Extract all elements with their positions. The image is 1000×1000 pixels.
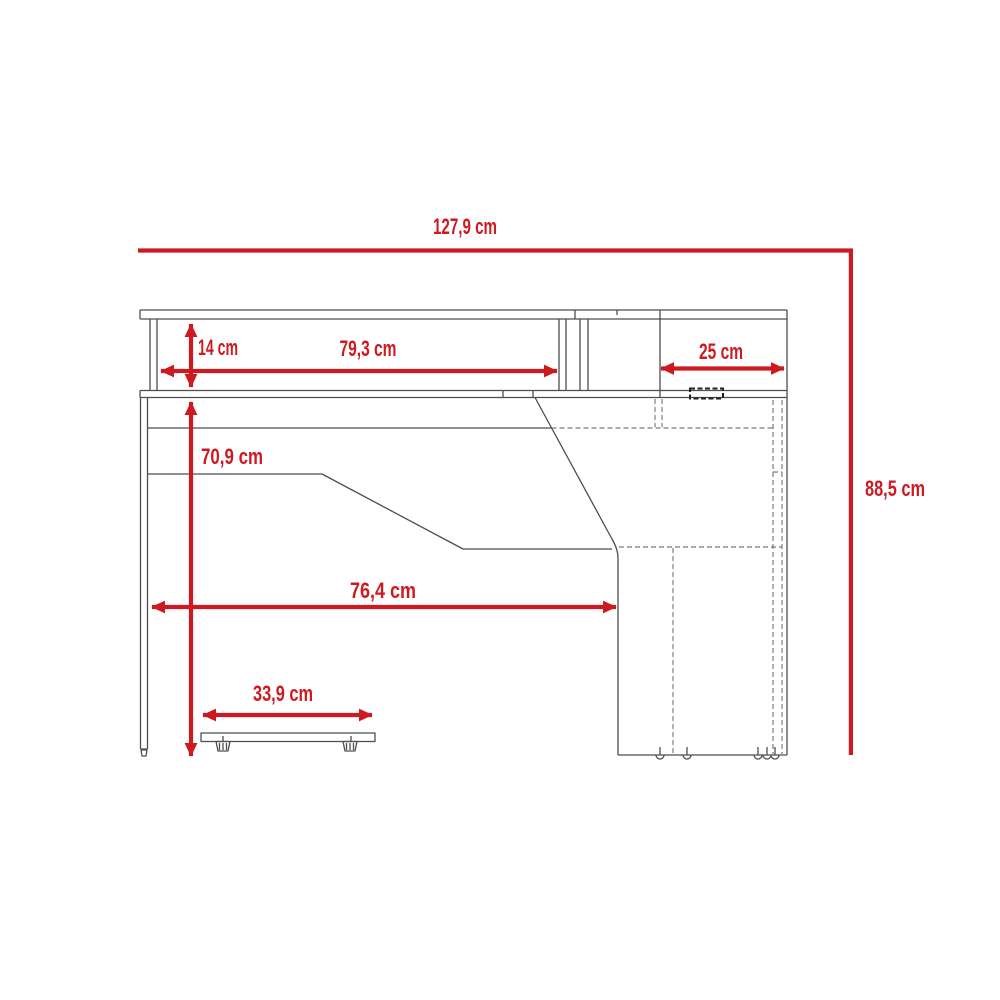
left-side-panel xyxy=(141,398,148,757)
dim-total-height-label: 88,5 cm xyxy=(865,476,925,501)
dim-hutch-height-label: 14 cm xyxy=(198,335,238,360)
dim-desk-height-label: 70,9 cm xyxy=(201,444,263,469)
diagram-canvas: 127,9 cm 88,5 cm 14 cm 79,3 cm 25 cm 70,… xyxy=(0,0,1000,1000)
hutch-top-board xyxy=(140,310,787,319)
desk-outline xyxy=(140,310,787,759)
right-leg-panel xyxy=(535,310,787,755)
right-panel-feet xyxy=(656,747,779,759)
dim-right-shelf-width-label: 25 cm xyxy=(699,339,743,364)
left-panel-foot xyxy=(141,750,147,756)
technical-drawing: 127,9 cm 88,5 cm 14 cm 79,3 cm 25 cm 70,… xyxy=(0,0,1000,1000)
under-structure-profile xyxy=(148,474,613,549)
dim-hutch-shelf-width-label: 79,3 cm xyxy=(340,336,397,361)
footrest xyxy=(201,733,375,751)
dim-desk-width-label: 76,4 cm xyxy=(350,578,416,603)
dim-overall-bracket xyxy=(138,251,851,756)
hidden-edges xyxy=(552,399,783,754)
dimension-annotations: 127,9 cm 88,5 cm 14 cm 79,3 cm 25 cm 70,… xyxy=(138,214,925,756)
dim-total-width-label: 127,9 cm xyxy=(433,214,497,239)
dim-footrest-width-label: 33,9 cm xyxy=(253,681,313,706)
